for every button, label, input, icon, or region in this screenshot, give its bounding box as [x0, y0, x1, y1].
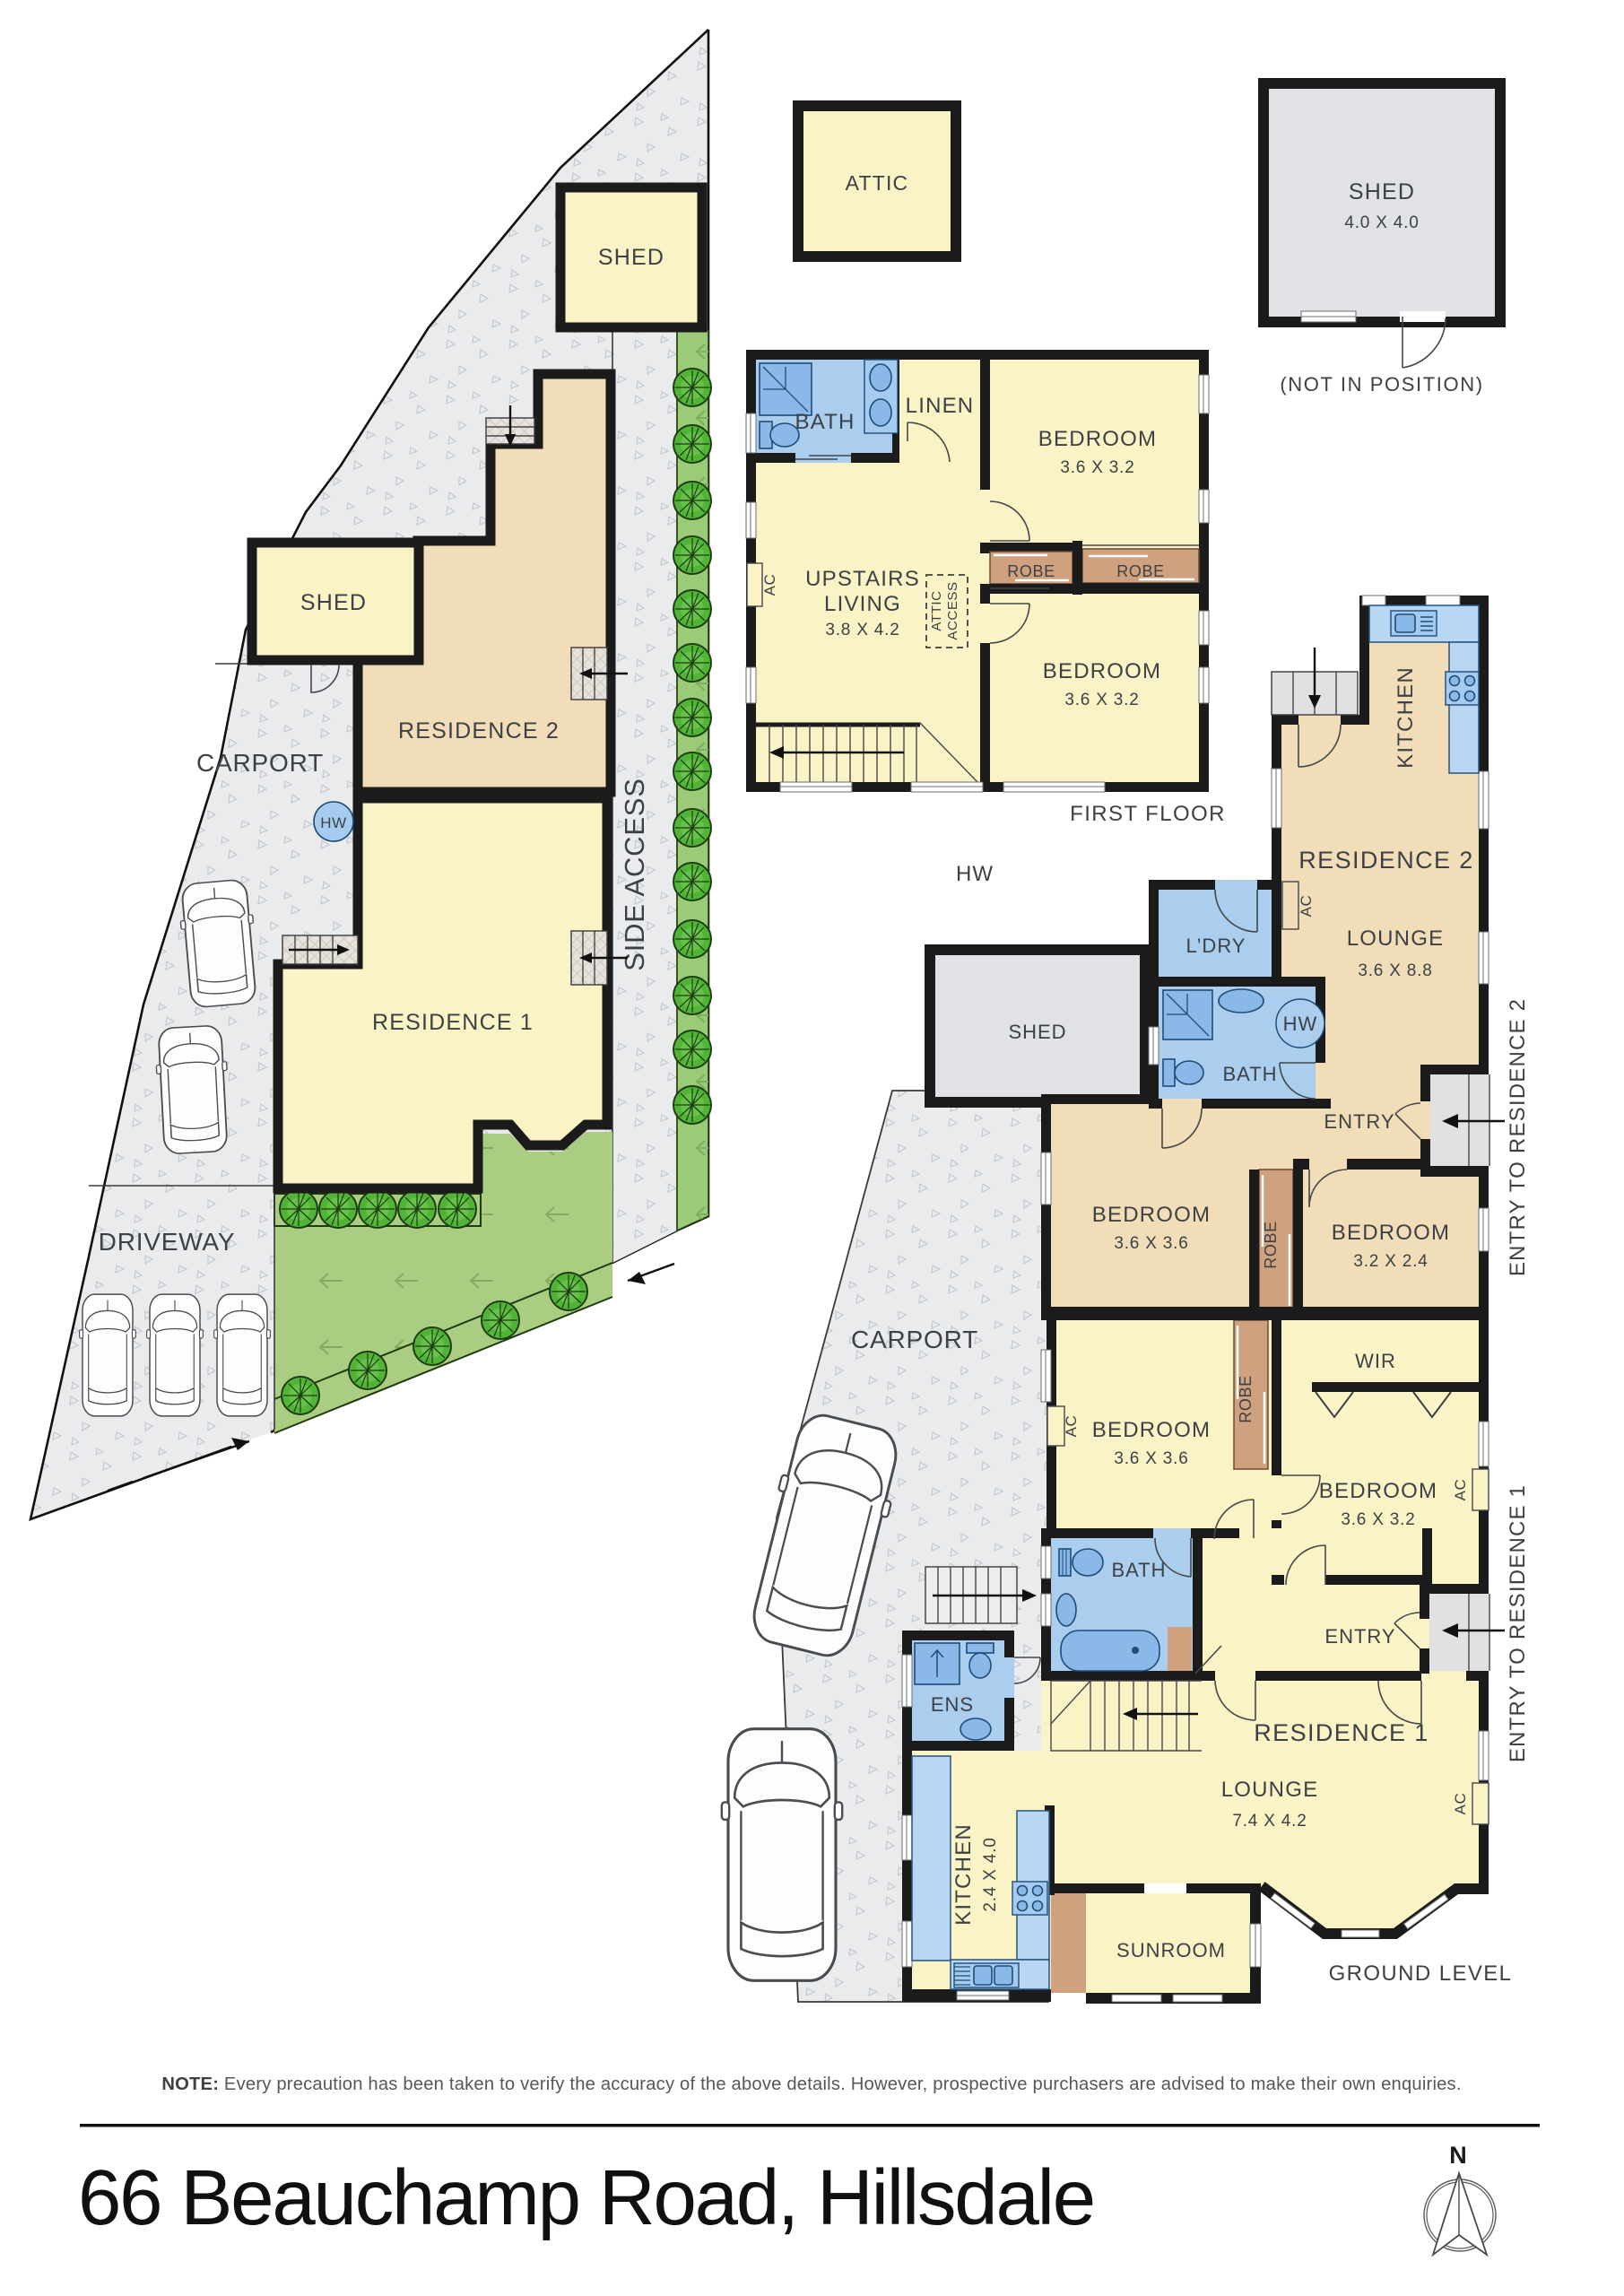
svg-text:ATTIC: ATTIC [929, 590, 944, 631]
svg-text:SUNROOM: SUNROOM [1116, 1939, 1226, 1961]
svg-text:BEDROOM: BEDROOM [1332, 1221, 1450, 1245]
svg-text:ENTRY TO RESIDENCE 1: ENTRY TO RESIDENCE 1 [1506, 1484, 1530, 1762]
svg-text:3.6 X 3.2: 3.6 X 3.2 [1064, 691, 1139, 709]
svg-text:7.4 X 4.2: 7.4 X 4.2 [1232, 1812, 1307, 1831]
svg-text:(NOT IN POSITION): (NOT IN POSITION) [1280, 373, 1483, 396]
svg-text:HW: HW [1283, 1013, 1318, 1035]
svg-text:3.6 X 8.8: 3.6 X 8.8 [1358, 961, 1432, 980]
svg-text:BATH: BATH [795, 410, 855, 434]
svg-text:L’DRY: L’DRY [1186, 935, 1246, 957]
svg-text:BATH: BATH [1222, 1063, 1277, 1085]
svg-text:LOUNGE: LOUNGE [1347, 926, 1445, 951]
svg-text:AC: AC [1298, 895, 1315, 918]
svg-text:KITCHEN: KITCHEN [1394, 666, 1418, 769]
svg-text:3.6 X 3.2: 3.6 X 3.2 [1060, 458, 1134, 477]
svg-text:SHED: SHED [1008, 1021, 1066, 1043]
svg-text:FIRST FLOOR: FIRST FLOOR [1070, 802, 1226, 826]
svg-text:ATTIC: ATTIC [846, 171, 909, 195]
svg-text:GROUND LEVEL: GROUND LEVEL [1329, 1961, 1513, 1986]
svg-text:UPSTAIRS: UPSTAIRS [805, 567, 920, 591]
svg-text:3.6 X 3.6: 3.6 X 3.6 [1114, 1449, 1188, 1468]
svg-text:NOTE: Every precaution has bee: NOTE: Every precaution has been taken to… [161, 2074, 1461, 2094]
svg-text:SHED: SHED [300, 590, 367, 615]
svg-text:ENS: ENS [931, 1693, 974, 1716]
svg-text:4.0 X 4.0: 4.0 X 4.0 [1344, 213, 1419, 232]
svg-text:BEDROOM: BEDROOM [1038, 427, 1157, 451]
svg-text:SHED: SHED [598, 245, 664, 270]
svg-text:AC: AC [761, 574, 778, 596]
svg-text:AC: AC [1452, 1793, 1469, 1815]
svg-text:66 Beauchamp Road, Hillsdale: 66 Beauchamp Road, Hillsdale [78, 2154, 1094, 2241]
svg-text:LINEN: LINEN [906, 394, 975, 418]
svg-text:SIDE ACCESS: SIDE ACCESS [619, 778, 650, 971]
svg-text:3.8 X 4.2: 3.8 X 4.2 [825, 621, 899, 639]
svg-text:ENTRY: ENTRY [1324, 1110, 1394, 1133]
svg-text:AC: AC [1452, 1479, 1469, 1501]
svg-text:RESIDENCE 1: RESIDENCE 1 [372, 1010, 534, 1035]
svg-text:HW: HW [956, 862, 994, 886]
svg-text:ROBE: ROBE [1237, 1375, 1255, 1422]
svg-text:ACCESS: ACCESS [945, 581, 960, 639]
svg-text:CARPORT: CARPORT [196, 749, 324, 777]
svg-text:ENTRY TO RESIDENCE 2: ENTRY TO RESIDENCE 2 [1506, 998, 1530, 1276]
svg-text:AC: AC [1063, 1415, 1080, 1438]
svg-text:RESIDENCE 2: RESIDENCE 2 [1298, 847, 1473, 874]
svg-text:BEDROOM: BEDROOM [1043, 659, 1161, 683]
svg-text:CARPORT: CARPORT [851, 1326, 978, 1353]
svg-text:RESIDENCE 2: RESIDENCE 2 [398, 718, 560, 744]
svg-text:3.2 X 2.4: 3.2 X 2.4 [1353, 1252, 1428, 1271]
svg-text:SHED: SHED [1349, 179, 1415, 204]
svg-text:HW: HW [320, 814, 347, 831]
svg-text:ROBE: ROBE [1262, 1221, 1280, 1268]
svg-text:ENTRY: ENTRY [1324, 1625, 1395, 1648]
svg-text:ROBE: ROBE [1007, 562, 1055, 580]
svg-text:ROBE: ROBE [1116, 562, 1164, 580]
svg-text:BEDROOM: BEDROOM [1319, 1479, 1437, 1503]
svg-text:RESIDENCE 1: RESIDENCE 1 [1254, 1719, 1429, 1746]
svg-text:BEDROOM: BEDROOM [1092, 1203, 1211, 1227]
svg-text:BEDROOM: BEDROOM [1092, 1418, 1211, 1442]
svg-text:WIR: WIR [1355, 1350, 1396, 1372]
svg-text:2.4 X 4.0: 2.4 X 4.0 [981, 1837, 1000, 1911]
svg-text:BATH: BATH [1111, 1559, 1166, 1581]
svg-text:3.6 X 3.6: 3.6 X 3.6 [1114, 1234, 1188, 1253]
svg-text:DRIVEWAY: DRIVEWAY [99, 1228, 236, 1256]
svg-text:LOUNGE: LOUNGE [1221, 1778, 1319, 1802]
svg-text:KITCHEN: KITCHEN [951, 1823, 976, 1926]
svg-text:3.6 X 3.2: 3.6 X 3.2 [1341, 1510, 1415, 1529]
svg-text:N: N [1449, 2142, 1467, 2169]
svg-text:LIVING: LIVING [824, 592, 901, 616]
